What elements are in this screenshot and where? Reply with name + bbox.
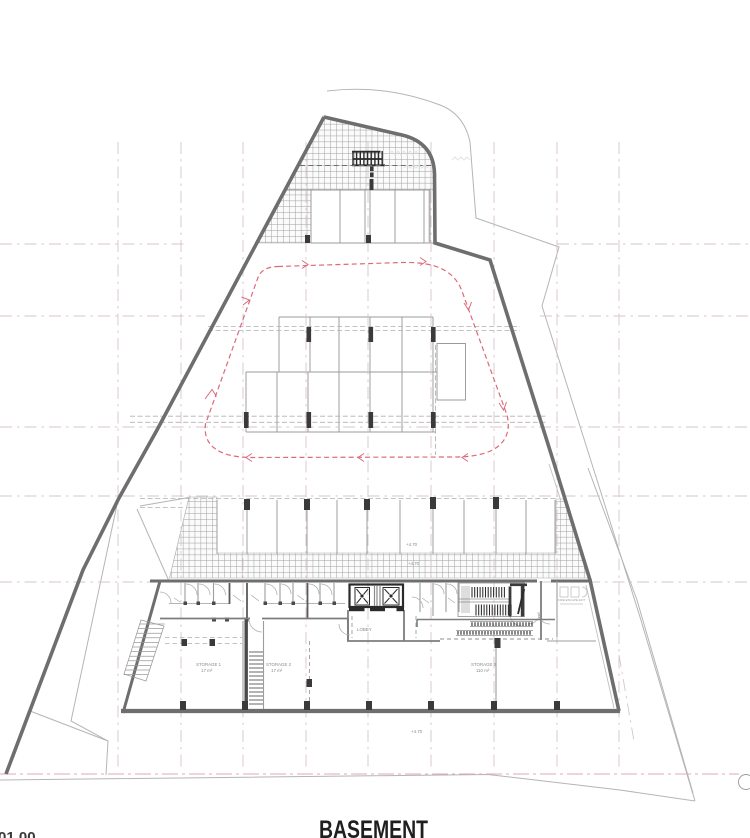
svg-text:01.00: 01.00	[0, 829, 36, 838]
svg-text:+4.70: +4.70	[411, 729, 423, 734]
svg-text:+4.70: +4.70	[406, 542, 418, 547]
svg-text:STORAGE 1: STORAGE 1	[196, 662, 222, 667]
svg-text:FIRE ESCAPE EXIT: FIRE ESCAPE EXIT	[558, 598, 586, 602]
svg-text:17 m²: 17 m²	[201, 668, 213, 673]
svg-text:STORAGE 2: STORAGE 2	[266, 662, 292, 667]
svg-text:STORAGE 3: STORAGE 3	[471, 662, 497, 667]
svg-text:BASEMENT: BASEMENT	[319, 816, 428, 838]
svg-text:+4.70: +4.70	[408, 561, 420, 566]
svg-text:LOBBY: LOBBY	[357, 627, 372, 632]
svg-text:110 m²: 110 m²	[476, 668, 490, 673]
svg-text:17 m²: 17 m²	[271, 668, 283, 673]
